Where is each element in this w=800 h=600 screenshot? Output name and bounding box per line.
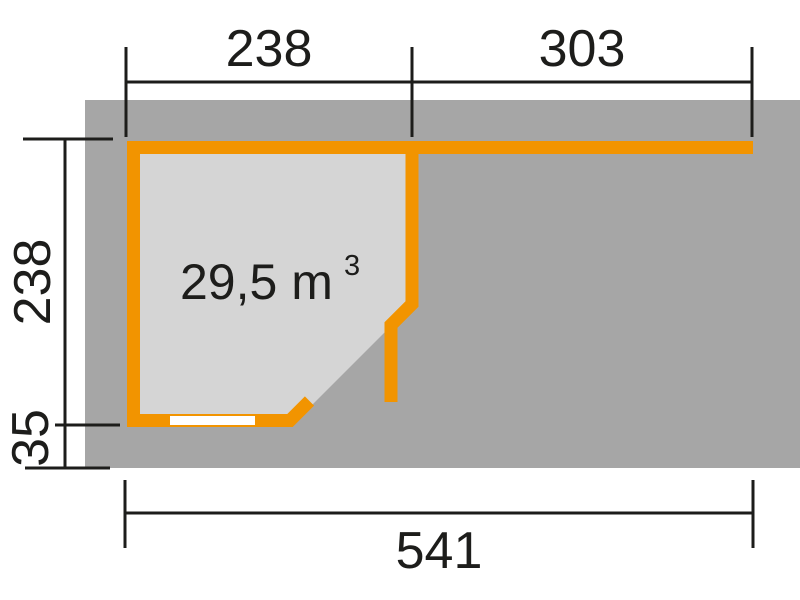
floor-plan-diagram: 238 303 238 35 541 29,5 m 3 [0, 0, 800, 600]
volume-label: 29,5 m [180, 254, 333, 310]
dimension-label-bottom: 541 [396, 522, 483, 580]
volume-exponent: 3 [344, 250, 360, 282]
floor-plan-page: 238 303 238 35 541 29,5 m 3 [0, 0, 800, 600]
window [170, 416, 255, 425]
dimension-label-top-right: 303 [539, 20, 626, 78]
dimension-label-side-bottom: 35 [2, 409, 60, 467]
dimension-label-side: 238 [4, 239, 62, 326]
dimension-label-top-left: 238 [226, 20, 313, 78]
